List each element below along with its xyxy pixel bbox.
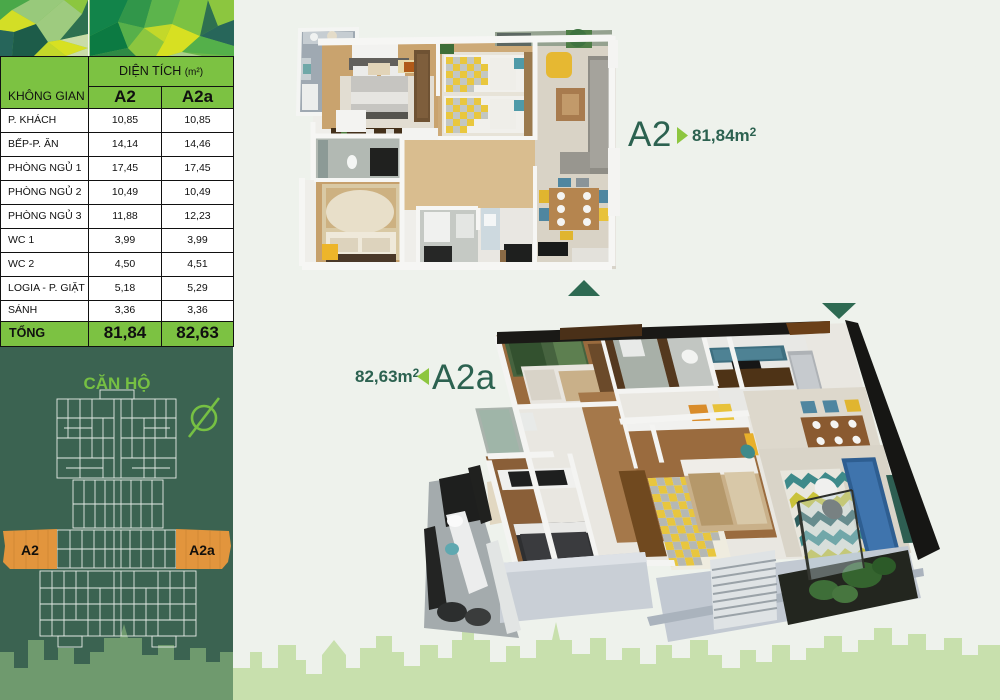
svg-text:A2: A2 <box>628 115 672 154</box>
svg-text:A2a: A2a <box>432 358 496 397</box>
svg-text:A2a: A2a <box>189 542 215 558</box>
svg-text:A2: A2 <box>21 542 39 558</box>
svg-text:82,63m2: 82,63m2 <box>355 366 420 386</box>
svg-text:81,84m2: 81,84m2 <box>692 125 757 145</box>
